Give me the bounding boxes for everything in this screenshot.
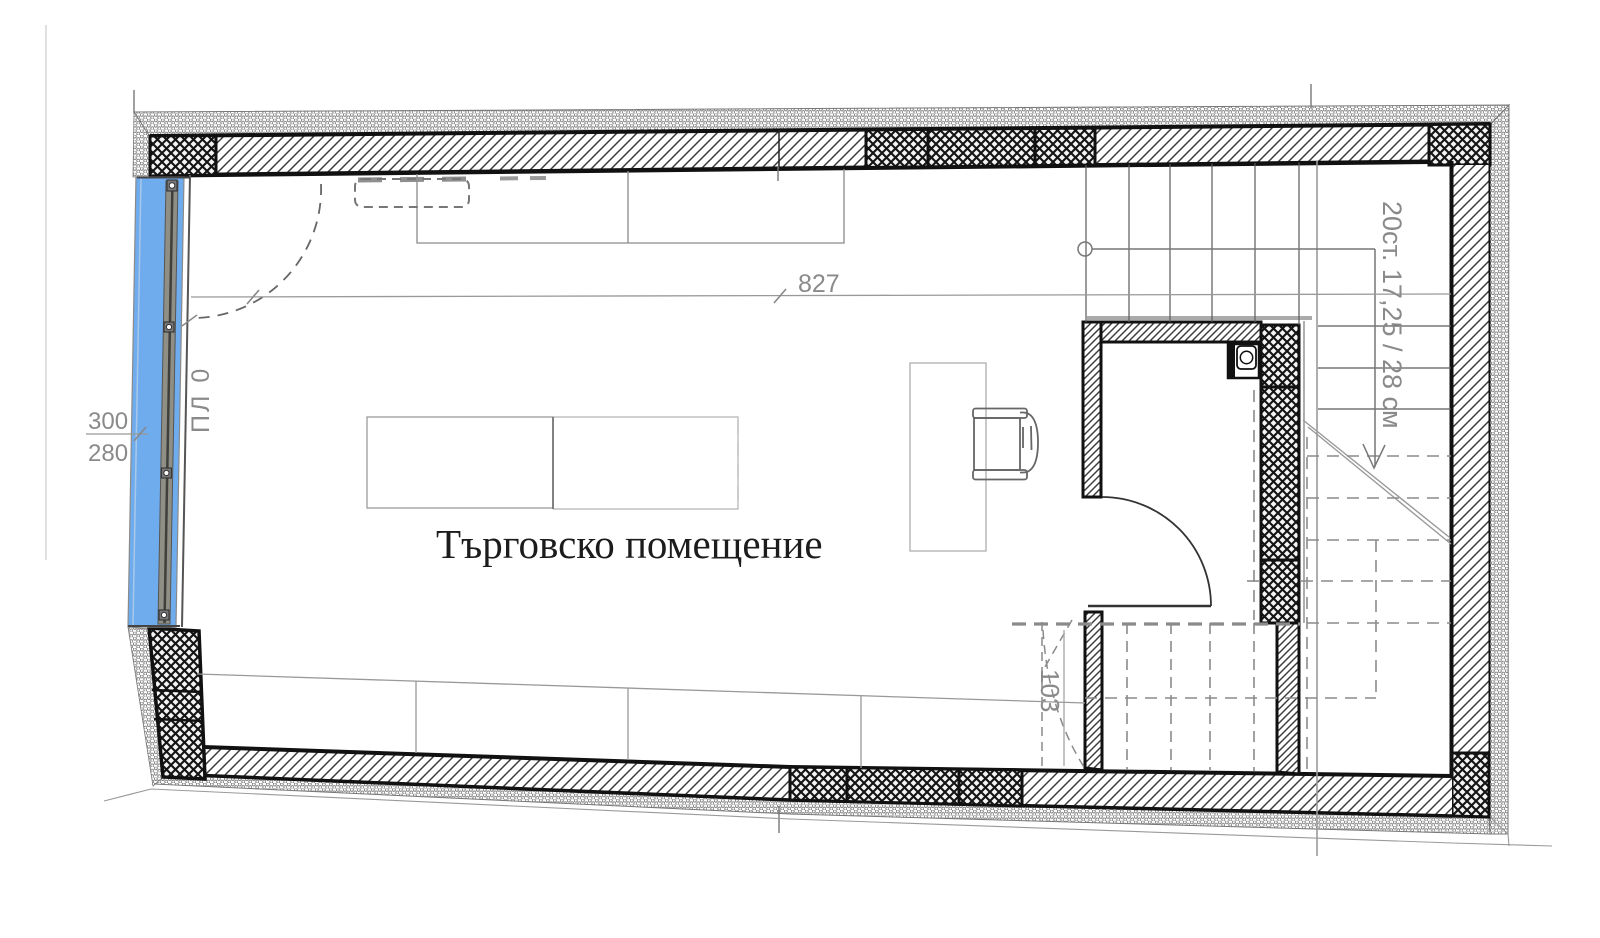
svg-text:300: 300 (88, 408, 128, 435)
svg-text:103: 103 (1035, 669, 1065, 712)
svg-text:280: 280 (88, 440, 128, 467)
svg-text:ПЛ 0: ПЛ 0 (187, 366, 215, 433)
svg-text:827: 827 (798, 270, 840, 298)
svg-text:Търговско помещение: Търговско помещение (436, 521, 823, 567)
svg-text:20ст. 17,25 / 28 см: 20ст. 17,25 / 28 см (1377, 201, 1407, 429)
